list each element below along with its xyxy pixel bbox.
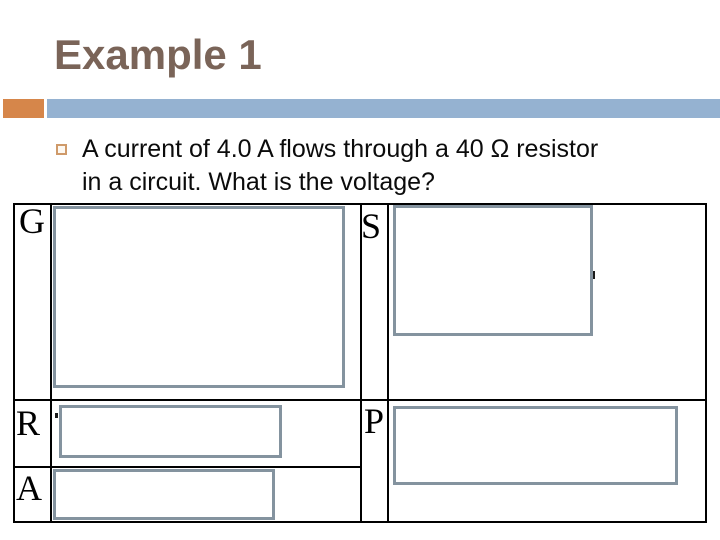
presentation-slide: Example 1 A current of 4.0 A flows throu… — [0, 0, 720, 540]
table-divider-right-label-col — [387, 203, 389, 523]
solution-answer-box — [393, 205, 593, 336]
table-divider-row2-left — [13, 466, 362, 468]
analysis-answer-box — [53, 469, 275, 520]
required-answer-box — [59, 405, 282, 458]
question-text: A current of 4.0 A flows through a 40 Ω … — [82, 133, 702, 199]
bullet-square-icon — [56, 144, 67, 155]
table-divider-left-label-col — [50, 203, 52, 523]
grasp-label-analysis: A — [16, 470, 42, 506]
stray-mark — [593, 271, 595, 279]
accent-bar-blue — [47, 99, 720, 118]
given-answer-box — [53, 206, 345, 388]
accent-bar-orange — [3, 99, 44, 118]
grasp-label-required: R — [16, 405, 40, 441]
table-divider-middle — [360, 203, 362, 523]
stray-mark — [55, 413, 58, 418]
question-line-1: A current of 4.0 A flows through a 40 Ω … — [82, 133, 702, 166]
slide-title: Example 1 — [54, 34, 262, 76]
grasp-label-paraphrase: P — [364, 403, 384, 439]
grasp-label-given: G — [19, 203, 45, 239]
table-border-right — [705, 203, 707, 523]
grasp-label-solution: S — [361, 208, 381, 244]
question-line-2: in a circuit. What is the voltage? — [82, 166, 702, 199]
paraphrase-answer-box — [393, 406, 678, 485]
table-border-left — [13, 203, 15, 523]
